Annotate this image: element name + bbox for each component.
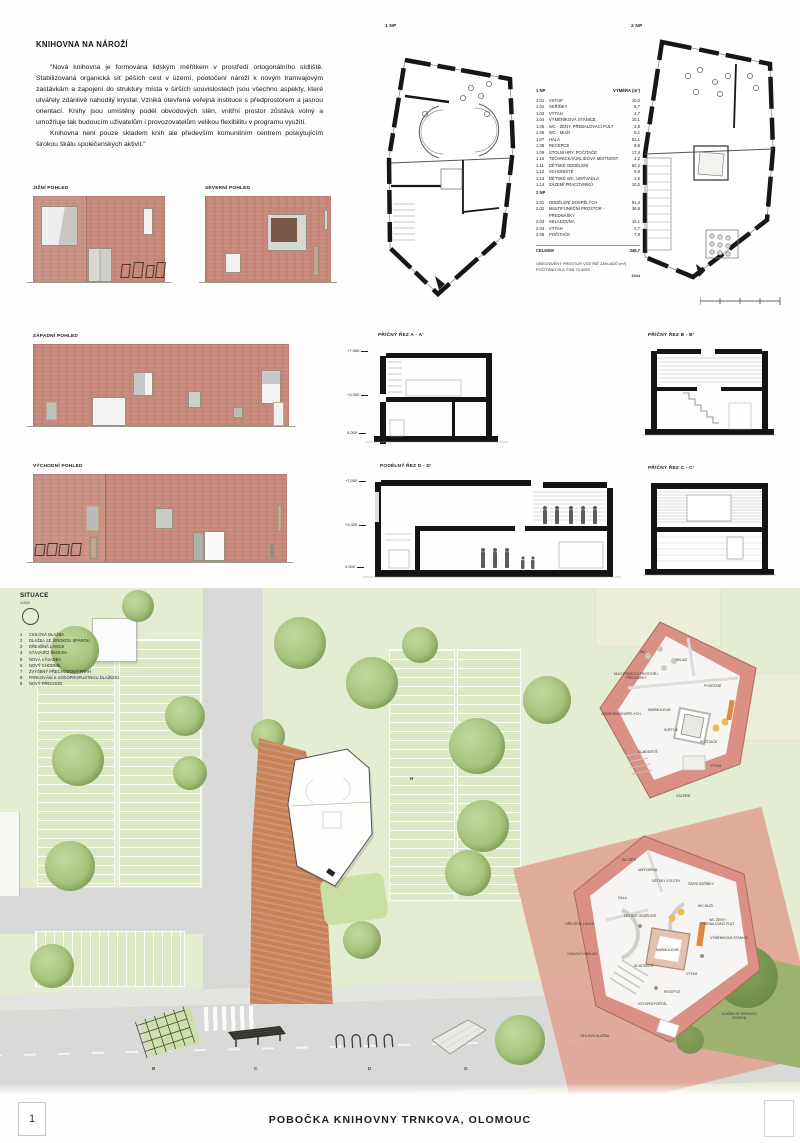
axon-label: VÝMĚNÍKOVÁ STANICE (710, 936, 748, 940)
floor-plan-2np (630, 36, 780, 296)
axon-label: DĚTSKÉ ODDĚLENÍ (622, 914, 658, 918)
legend-2np: 2 NP 2.01 ODDĚLENÍ DOSPĚLÝCH 91,3 2.02 M… (536, 190, 640, 279)
window-slot (324, 210, 328, 230)
plan-note: OBESTAVĚNÝ PROSTOR VČETNĚ ZÁKLADŮ (m³) P… (536, 261, 640, 279)
entrance-door (204, 531, 225, 561)
axon-label: SCHODIŠTĚ (634, 964, 654, 968)
elevation-south (33, 196, 165, 282)
facade-corner-seam (86, 196, 87, 282)
plan1-label: 1 NP (385, 24, 396, 29)
floor-plan-1np (383, 36, 533, 302)
tree (445, 850, 491, 896)
figure-sketch (155, 262, 166, 278)
intro-paragraph-1: "Nová knihovna je formována lidským měří… (36, 62, 323, 128)
axon-label: SKLAD (676, 658, 687, 662)
section-b-drawing (643, 341, 776, 445)
parking-letter: H (410, 776, 413, 781)
section-a-drawing (366, 340, 508, 452)
tree (495, 1015, 545, 1065)
entrance-door (88, 248, 112, 282)
axon-label: WC MUŽI (698, 904, 713, 908)
figure-sketch (145, 265, 155, 278)
tree (45, 841, 95, 891)
window-slot (277, 505, 282, 532)
axon-label: MULTIFUNKČNÍ PROSTOR / PŘEDNÁŠKY (612, 672, 660, 681)
window-tall (261, 370, 281, 404)
section-c-drawing (643, 475, 776, 585)
axon-label: GALERIE (676, 794, 691, 798)
window-slot (270, 544, 274, 558)
parking-lot (390, 650, 454, 900)
tree (52, 734, 104, 786)
site-scale: 1:200 (20, 600, 30, 605)
axon-label: VSTUPNÍ PORTÁL (638, 1002, 667, 1006)
total-label: CELKEM (536, 248, 554, 255)
window-large (92, 397, 126, 426)
window-slot (313, 246, 319, 276)
elevation-east (33, 474, 287, 562)
plan2-label: 2 NP (631, 24, 642, 29)
detail-letter: B (152, 1066, 155, 1071)
section-d-drawing (363, 470, 621, 586)
axon-label: UMÝVÁRNA (638, 868, 657, 872)
figure-sketch (34, 544, 45, 556)
axon-label: SVĚTLÍK (664, 728, 678, 732)
axon-label: CIHLOVÁ DLAŽBA (580, 1034, 609, 1038)
axon-label: WC (640, 650, 646, 654)
axon-label: ŠATNÍ SKŘÍŇKY (684, 882, 718, 886)
axon-label: DLAŽBA SE ŠIROKOU SPÁROU (716, 1012, 762, 1021)
tree (523, 676, 571, 724)
window (233, 407, 243, 418)
legend1-area-header: VÝMĚRA (m²) (613, 88, 640, 95)
legend-row: 1.14 ZÁZEMÍ PRACOVNÍKŮ 10,0 (536, 182, 640, 189)
axon-label: VÝTAH (686, 972, 697, 976)
elevation-west (33, 344, 289, 426)
level-mark: 0,000 (347, 430, 366, 435)
legend-row: 2.02 MULTIFUNKČNÍ PROSTOR - PŘEDNÁŠKY 36… (536, 206, 640, 219)
presentation-board: KNIHOVNA NA NÁROŽÍ "Nová knihovna je for… (0, 0, 800, 1143)
total-value: 349,7 (630, 248, 640, 255)
entrance-door (273, 402, 284, 426)
tree (343, 921, 381, 959)
bench-detail (222, 1024, 292, 1052)
road-horizontal (0, 888, 203, 934)
legend2-title: 2 NP (536, 190, 545, 197)
elevation-south-label: JIŽNÍ POHLED (33, 186, 68, 191)
window (188, 391, 201, 408)
axon-label: CIHLOVÝ OBKLAD (566, 952, 598, 956)
figure-sketch (58, 544, 69, 556)
section-a-label: PŘÍČNÝ ŘEZ A - A' (378, 333, 424, 338)
tree (346, 657, 398, 709)
north-symbol (22, 608, 39, 625)
axon-label: POSEZENÍ (704, 684, 721, 688)
window (41, 206, 78, 246)
intro-block: KNIHOVNA NA NÁROŽÍ "Nová knihovna je for… (36, 40, 323, 150)
legend1-title: 1 NP (536, 88, 545, 95)
legend2-rows: 2.01 ODDĚLENÍ DOSPĚLÝCH 91,3 2.02 MULTIF… (536, 200, 640, 239)
axon-label: DĚTSKÝ KOUTEK (652, 879, 680, 883)
library-footprint (283, 746, 379, 892)
axon-label: MARMOLEUM (656, 948, 678, 952)
bike-rack-detail (330, 1024, 402, 1052)
section-c-label: PŘÍČNÝ ŘEZ C - C' (648, 466, 694, 471)
elevation-north-label: SEVERNÍ POHLED (205, 186, 250, 191)
site-title: SITUACE (20, 592, 49, 599)
window-reveal (271, 218, 297, 242)
section-b-label: PŘÍČNÝ ŘEZ B - B' (648, 333, 694, 338)
axon-label: POČÍTAČE (700, 740, 717, 744)
legend1-rows: 1.01 VSTUP 10,0 1.02 SKŘÍŇKY 6,7 1.03 VÝ… (536, 98, 640, 189)
site-legend: 1 CIHLOVÁ DLAŽBA 2 DLAŽBA SE ŠIROKOU SPÁ… (20, 632, 150, 687)
window (143, 208, 153, 235)
elevation-north (205, 196, 331, 282)
axon-label: SCHODIŠTĚ (638, 750, 658, 754)
scale-bar (700, 297, 784, 305)
tree (449, 718, 505, 774)
board-title: POBOČKA KNIHOVNY TRNKOVA, OLOMOUC (0, 1114, 800, 1126)
figure-sketch (70, 543, 82, 556)
figure-sketch (132, 262, 144, 278)
intro-paragraph-2: Knihovna není pouze skladem knih ale pře… (36, 128, 323, 150)
axon-label: ODDĚLENÍ DOSPĚLÝCH (600, 712, 642, 716)
window (133, 372, 153, 396)
window (46, 402, 57, 420)
axon-label: HALA (618, 896, 627, 900)
axon-label: MARMOLEUM (648, 708, 670, 712)
elevation-east-label: VÝCHODNÍ POHLED (33, 464, 83, 469)
window-slot (90, 537, 97, 559)
door-panel (193, 532, 204, 561)
window (155, 508, 173, 529)
footer-right-box (764, 1100, 794, 1137)
window (225, 253, 241, 273)
tree (173, 756, 207, 790)
tree (30, 944, 74, 988)
tree (165, 696, 205, 736)
figure-sketch (46, 543, 58, 556)
detail-letter: G (464, 1066, 468, 1071)
context-building (0, 812, 20, 896)
level-mark: 0,000 (345, 564, 364, 569)
site-plan: H H (0, 588, 800, 1095)
tree (122, 590, 154, 622)
axon-label: WC ŽENY / PŘEBALOVACÍ PULT (698, 918, 738, 927)
axon-label: WC DĚTI (622, 858, 636, 862)
figure-sketch (120, 264, 131, 278)
facade-corner-seam (105, 474, 106, 562)
section-d-label: PODÉLNÝ ŘEZ D - D' (380, 464, 431, 469)
tree (402, 627, 438, 663)
pergola-detail (130, 1003, 202, 1061)
tree (457, 800, 509, 852)
intro-title: KNIHOVNA NA NÁROŽÍ (36, 40, 323, 49)
axon-label: DŘEVĚNÁ LAVICE (564, 922, 596, 926)
note-value: 1544 (536, 273, 640, 279)
elevation-west-label: ZÁPADNÍ POHLED (33, 334, 78, 339)
axon-label: VÝTAH (710, 764, 721, 768)
axon-label: RECEPCE (664, 990, 680, 994)
tree (274, 617, 326, 669)
detail-letter: C (254, 1066, 257, 1071)
legend-1np: 1 NP VÝMĚRA (m²) 1.01 VSTUP 10,0 1.02 SK… (536, 88, 640, 189)
detail-letter: D (368, 1066, 371, 1071)
window-recessed (267, 214, 307, 251)
window (86, 506, 99, 531)
legend-row: 2.05 POČÍTAČE 7,8 (536, 232, 640, 239)
paving-detail (424, 1014, 490, 1060)
site-legend-row: 9 NOVÝ PŘECHOD (20, 681, 150, 687)
